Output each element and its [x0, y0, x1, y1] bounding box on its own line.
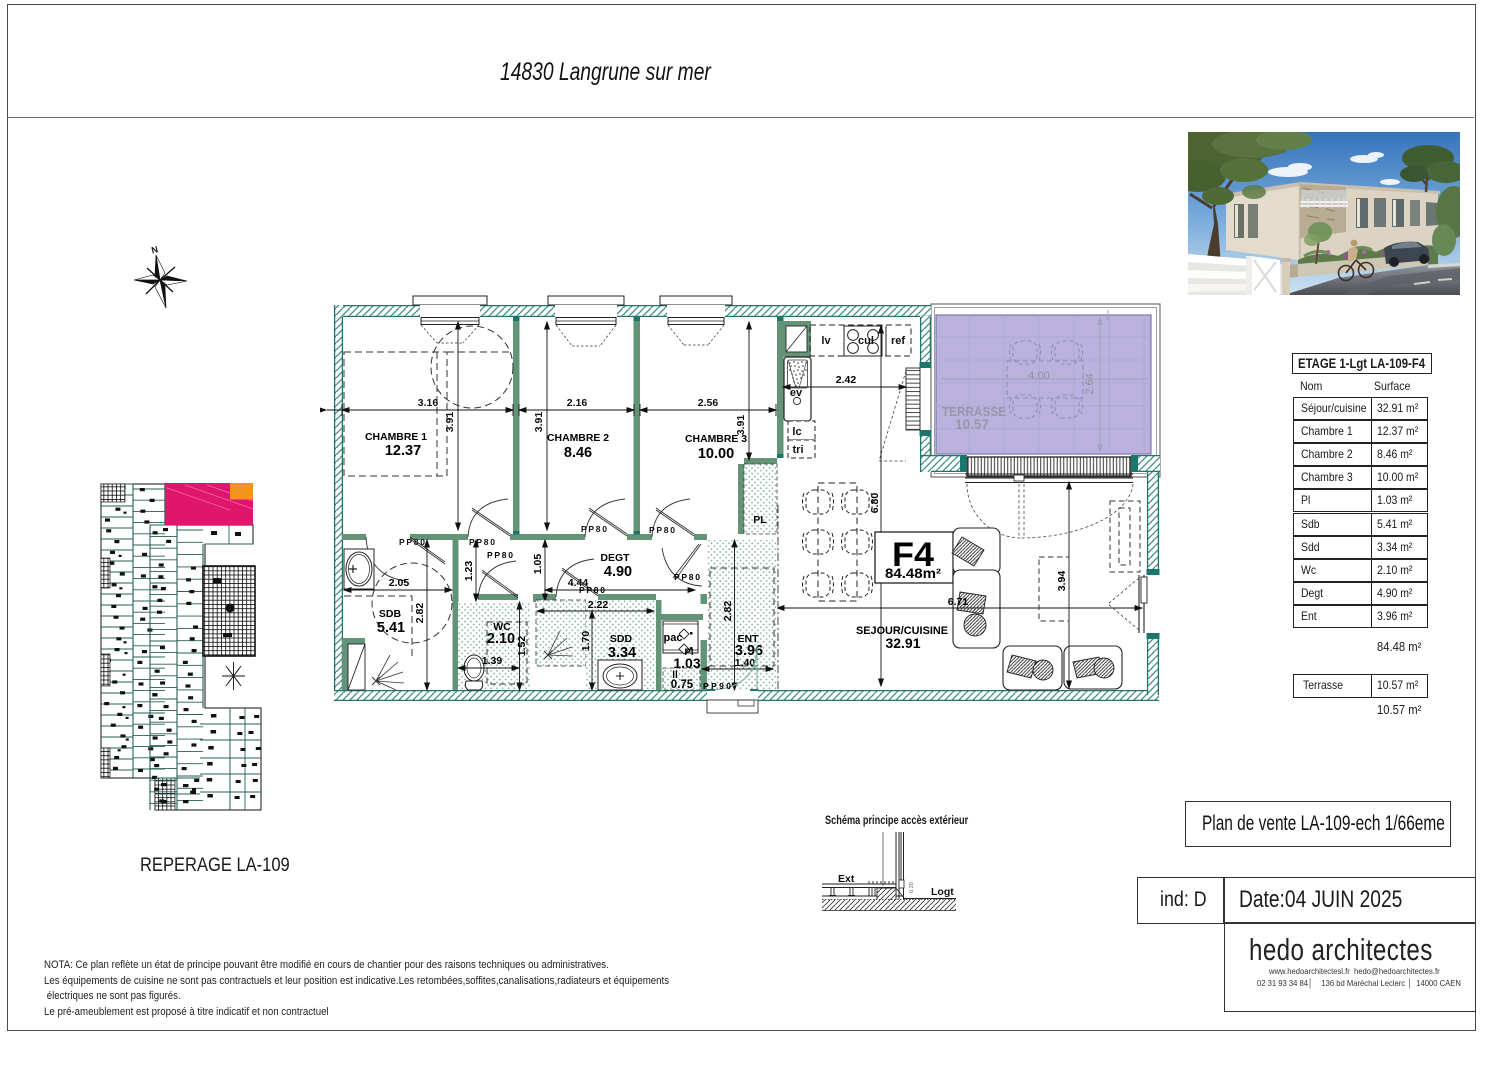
svg-text:1.52: 1.52	[516, 636, 528, 657]
svg-text:PP80: PP80	[469, 537, 495, 547]
svg-text:5.41: 5.41	[377, 620, 405, 636]
svg-text:2.10: 2.10	[487, 631, 515, 647]
svg-text:CHAMBRE 2: CHAMBRE 2	[547, 432, 609, 444]
svg-text:3.16: 3.16	[418, 397, 439, 409]
svg-text:Logt: Logt	[931, 886, 954, 898]
svg-text:2.82: 2.82	[722, 601, 734, 622]
svg-text:3.91: 3.91	[533, 412, 545, 433]
svg-text:3.94: 3.94	[1056, 571, 1068, 592]
svg-text:32.91: 32.91	[885, 635, 920, 651]
svg-text:SDB: SDB	[379, 608, 402, 620]
svg-text:4.00: 4.00	[1028, 370, 1049, 382]
svg-text:2.16: 2.16	[567, 397, 588, 409]
svg-text:PP80: PP80	[649, 525, 675, 535]
svg-text:1.05: 1.05	[532, 554, 544, 575]
svg-text:84.48m²: 84.48m²	[885, 566, 942, 581]
svg-text:2.56: 2.56	[698, 397, 719, 409]
svg-text:3.91: 3.91	[444, 412, 456, 433]
svg-text:4.90: 4.90	[604, 564, 632, 580]
svg-text:1.23: 1.23	[463, 561, 475, 582]
svg-text:PP80: PP80	[674, 572, 700, 582]
svg-text:1.70: 1.70	[580, 631, 592, 652]
svg-text:ev: ev	[790, 387, 803, 399]
svg-text:6.71: 6.71	[948, 596, 969, 608]
svg-text:0.75: 0.75	[671, 679, 694, 691]
svg-text:3.91: 3.91	[735, 415, 747, 436]
svg-text:cul: cul	[858, 335, 874, 347]
svg-text:N: N	[150, 244, 159, 255]
svg-text:1.40: 1.40	[735, 657, 756, 669]
svg-text:Ext: Ext	[838, 873, 855, 885]
svg-text:SDD: SDD	[610, 633, 633, 645]
svg-text:PL: PL	[753, 514, 767, 526]
svg-text:CHAMBRE 1: CHAMBRE 1	[365, 431, 427, 443]
svg-text:10.00: 10.00	[698, 446, 734, 462]
svg-text:lc: lc	[792, 426, 801, 438]
svg-text:1.39: 1.39	[482, 655, 503, 667]
svg-text:0.20: 0.20	[909, 882, 915, 893]
svg-text:10.57: 10.57	[955, 417, 989, 432]
svg-text:2.64: 2.64	[1084, 373, 1096, 394]
svg-text:pac: pac	[664, 632, 683, 644]
svg-text:3.34: 3.34	[608, 645, 636, 661]
svg-text:ref: ref	[891, 335, 905, 347]
svg-text:2.22: 2.22	[588, 599, 609, 611]
svg-text:2.42: 2.42	[836, 374, 857, 386]
svg-text:2.82: 2.82	[414, 603, 426, 624]
svg-text:PP80: PP80	[487, 550, 513, 560]
svg-text:2.05: 2.05	[389, 577, 410, 589]
svg-text:12.37: 12.37	[385, 443, 421, 459]
svg-text:tri: tri	[793, 444, 804, 456]
svg-text:PP80: PP80	[581, 524, 607, 534]
svg-text:DEGT: DEGT	[600, 552, 630, 564]
svg-text:8.46: 8.46	[564, 445, 592, 461]
svg-text:6.80: 6.80	[869, 493, 881, 514]
svg-text:lv: lv	[821, 335, 831, 347]
